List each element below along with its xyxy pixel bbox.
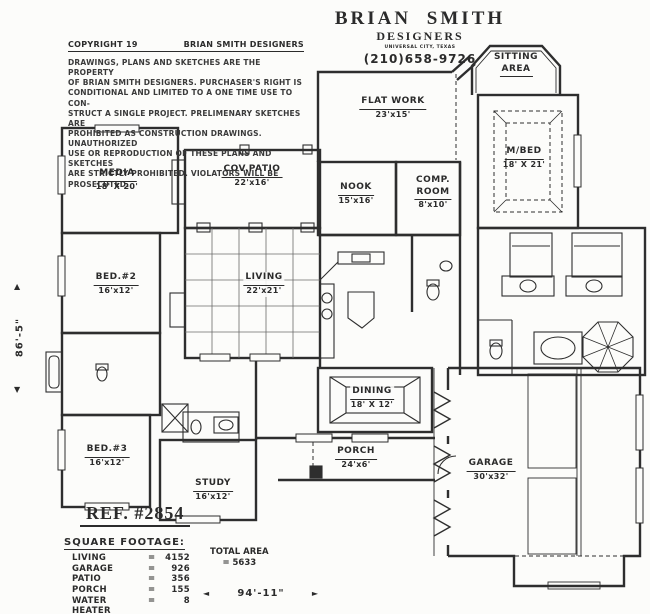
total-area: TOTAL AREA = 5633 (210, 547, 269, 569)
down-arrow-icon: ▼ (14, 385, 20, 394)
floor-plan-sheet: BRIAN SMITH DESIGNERS UNIVERSAL CITY, TE… (0, 0, 650, 614)
room-label-comp-room: COMP. ROOM 8'x10' (414, 175, 451, 212)
room-label-media: MEDIA 18' X 20' (96, 168, 139, 193)
room-label-dining: DINING 18' X 12' (350, 386, 394, 411)
reference-number: REF. #2854 (80, 503, 190, 527)
master-bath-walls (478, 228, 645, 375)
bathtub-icon (46, 352, 62, 392)
room-label-bed3: BED.#3 16'x12' (85, 444, 130, 469)
firm-city: UNIVERSAL CITY, TEXAS (330, 45, 510, 50)
room-label-cov-patio: COV.PATIO 22'x16' (222, 164, 283, 189)
toilet-icon (191, 420, 201, 434)
closet (572, 233, 622, 277)
garage-door-chevrons (434, 392, 450, 536)
room-label-garage: GARAGE 30'x32' (467, 458, 516, 483)
firm-name: BRIAN SMITH (330, 8, 510, 30)
up-arrow-icon: ▲ (14, 282, 20, 291)
porch-column (310, 466, 322, 478)
sink-icon (586, 280, 602, 292)
copyright-year: COPYRIGHT 19 (68, 40, 138, 49)
garage-bay (528, 478, 576, 554)
toilet-icon (97, 367, 107, 381)
dimension-height-label: 86'-5" (15, 312, 26, 364)
right-arrow-icon: ► (312, 589, 319, 598)
oven-icon (322, 309, 332, 319)
copyright-heading: COPYRIGHT 19 BRIAN SMITH DESIGNERS (68, 40, 304, 52)
room-label-sitting-area: SITTING AREA (494, 52, 538, 77)
room-label-mbed: M/BED 18' X 21' (503, 146, 546, 171)
dimension-width-label: 94'-11" (237, 588, 284, 599)
oven-icon (322, 293, 332, 303)
sink-icon (219, 420, 233, 430)
fireplace-icon (170, 293, 185, 327)
room-label-bed2: BED.#2 16'x12' (94, 272, 139, 297)
room-label-flat-work: FLAT WORK 23'x15' (359, 96, 426, 121)
room-bath-left-walls (62, 333, 160, 415)
room-label-study: STUDY 16'x12' (193, 478, 233, 503)
bathtub-icon (541, 337, 575, 359)
kitchen-island (348, 292, 374, 328)
kitchen-sink-icon (352, 254, 370, 262)
room-label-living: LIVING 22'x21' (243, 272, 284, 297)
dimension-width: ◄ 94'-11" ► (203, 588, 319, 599)
table-row: PATIO = 356 (72, 574, 304, 585)
sink-icon (440, 261, 452, 271)
table-row: GARAGE = 926 (72, 564, 304, 575)
sink-icon (520, 280, 536, 292)
copyright-owner: BRIAN SMITH DESIGNERS (184, 40, 304, 49)
closet (510, 233, 552, 277)
garage-bay (528, 374, 576, 468)
dimension-height: ▲ 86'-5" ▼ (10, 282, 30, 394)
square-footage-table: LIVING = 4152 GARAGE = 926 PATIO = 356 P… (72, 553, 304, 614)
room-label-nook: NOOK 15'x16' (338, 182, 374, 207)
table-row: LIVING = 4152 (72, 553, 304, 564)
firm-phone: (210)658-9726 (330, 52, 510, 66)
firm-subtitle: DESIGNERS (330, 29, 510, 44)
toilet-icon (490, 343, 502, 359)
square-footage-heading: SQUARE FOOTAGE: (64, 537, 185, 550)
title-block: BRIAN SMITH DESIGNERS UNIVERSAL CITY, TE… (330, 8, 510, 66)
left-arrow-icon: ◄ (203, 589, 210, 598)
square-footage-block: SQUARE FOOTAGE: LIVING = 4152 GARAGE = 9… (64, 530, 304, 614)
room-label-porch: PORCH 24'x6' (335, 446, 377, 471)
